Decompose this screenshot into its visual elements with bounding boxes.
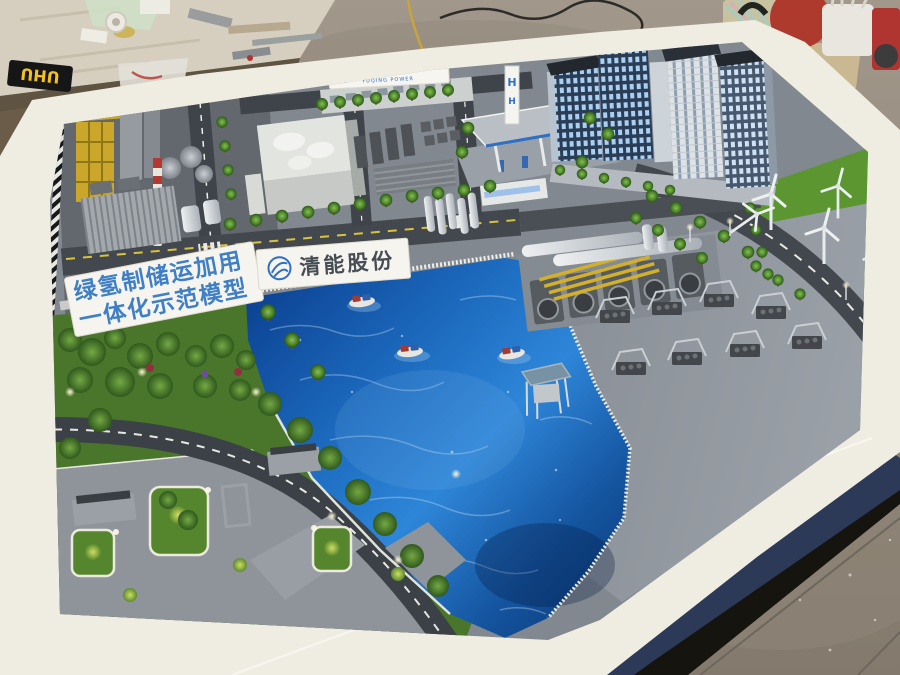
office-tower: [667, 53, 723, 179]
storage-sphere: [159, 157, 181, 179]
fuel-pump: [522, 156, 528, 168]
tape-roll: [106, 12, 126, 32]
office-tower: [720, 59, 771, 189]
office-tower: [598, 47, 654, 161]
purple-flowers: [202, 371, 209, 378]
tank: [202, 199, 221, 225]
palm-tuft: [324, 540, 340, 556]
palm-tuft: [233, 558, 247, 572]
workshop-photo: UHU: [0, 0, 900, 675]
model-scene: UHU: [0, 0, 900, 675]
red-flowers: [234, 368, 242, 376]
pillar-letter-bottom: H: [508, 97, 516, 107]
tool-bin: [822, 4, 874, 56]
tank: [180, 205, 201, 233]
palm-tuft: [123, 588, 137, 602]
paper-scrap: [140, 0, 170, 14]
palm-tuft: [85, 544, 101, 560]
office-tower: [554, 67, 603, 161]
palm-tuft: [391, 567, 405, 581]
red-flowers: [146, 364, 154, 372]
hydrogen-pillar-sign: H H: [505, 66, 519, 124]
storage-sphere: [195, 165, 213, 183]
pillar-letter-top: H: [507, 76, 516, 89]
storage-sphere: [180, 146, 202, 168]
